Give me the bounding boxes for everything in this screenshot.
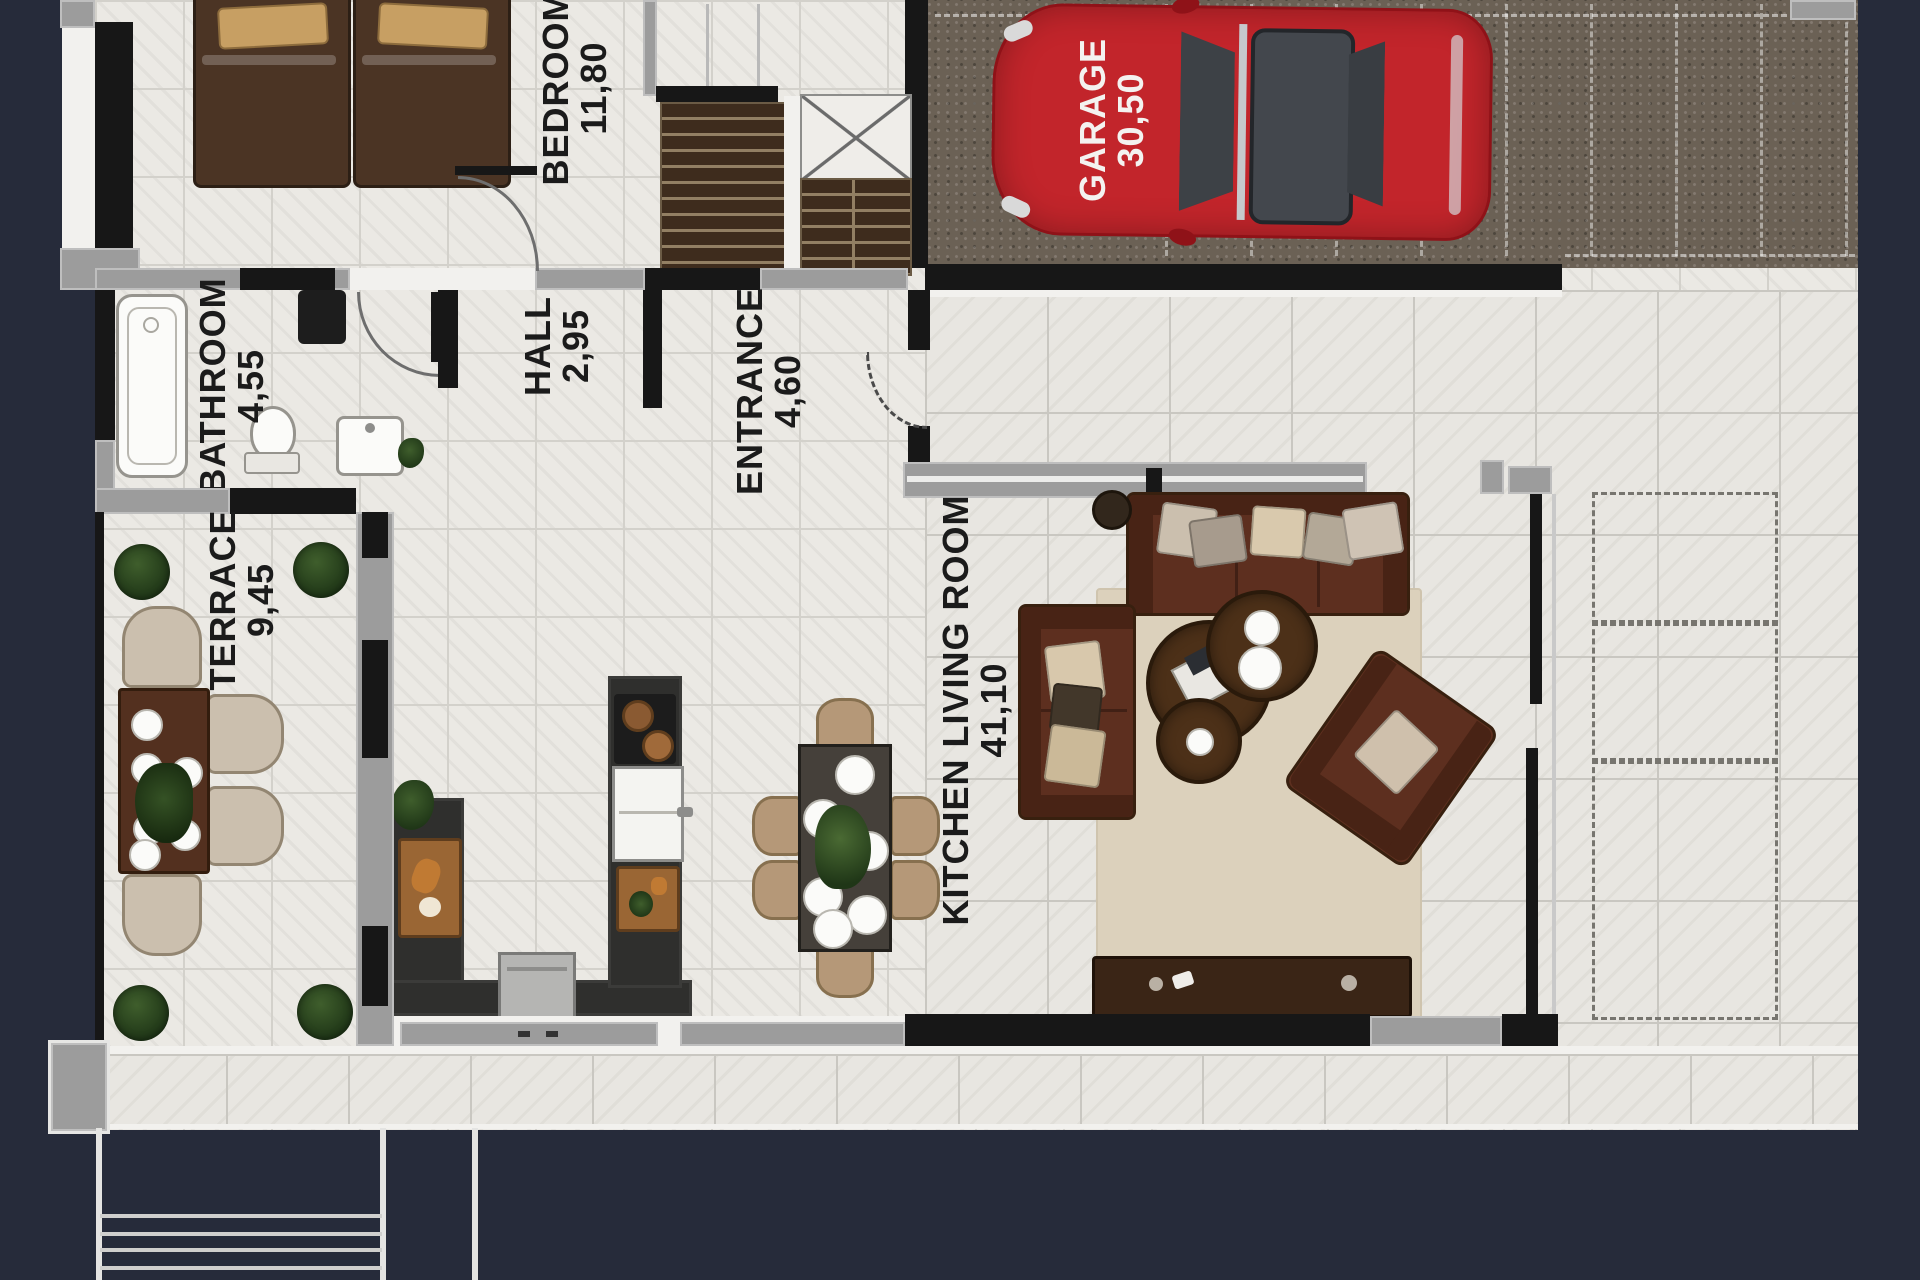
serving-plate bbox=[1244, 610, 1280, 646]
room-area: 4,60 bbox=[769, 287, 807, 495]
exterior-pier bbox=[48, 1040, 110, 1134]
car-trunk-trim bbox=[1449, 35, 1464, 215]
room-area: 41,10 bbox=[975, 495, 1013, 926]
room-label-garage: GARAGE 30,50 bbox=[1074, 38, 1150, 202]
bed-pillow bbox=[377, 2, 489, 50]
terrace-chair bbox=[206, 786, 284, 866]
patio-marking bbox=[1592, 758, 1778, 1020]
sofa-two-seat bbox=[1018, 604, 1136, 820]
bed bbox=[353, 0, 511, 188]
bathroom-cabinet bbox=[298, 290, 346, 344]
room-name: GARAGE bbox=[1074, 38, 1112, 202]
coffee-table-round bbox=[1206, 590, 1318, 702]
food-item bbox=[408, 856, 444, 897]
bed-blanket-fold bbox=[202, 55, 336, 65]
bathroom-left-wall bbox=[95, 290, 115, 440]
right-glass-line bbox=[1552, 494, 1556, 1016]
sofa-pillow bbox=[1188, 513, 1248, 568]
car-roof-glass bbox=[1249, 28, 1356, 225]
exterior-step bbox=[100, 1214, 382, 1236]
terrace-chair bbox=[122, 874, 202, 956]
terrace-bush bbox=[293, 542, 349, 598]
bathtub bbox=[116, 294, 188, 478]
sofa-armrest bbox=[1021, 795, 1133, 817]
bottom-pavement bbox=[104, 1054, 1858, 1126]
room-label-bedroom: BEDROOM 11,80 bbox=[537, 0, 613, 186]
living-right-wall bbox=[1530, 494, 1542, 704]
dining-chair bbox=[890, 796, 940, 856]
exterior-wall bbox=[60, 0, 95, 28]
pot bbox=[622, 700, 654, 732]
sofa-pillow bbox=[1341, 501, 1404, 561]
herbs bbox=[629, 891, 653, 917]
sideboard-knob bbox=[1149, 977, 1163, 991]
garage-grid-line bbox=[1675, 4, 1678, 256]
stairs-landing bbox=[800, 94, 912, 182]
door-opening bbox=[443, 268, 535, 290]
terrace-plate bbox=[129, 839, 161, 871]
sink-faucet bbox=[365, 423, 375, 433]
stair-railing bbox=[757, 4, 760, 86]
entrance-right-wall-low bbox=[908, 426, 930, 466]
cutting-board bbox=[616, 866, 680, 932]
living-bottom-window bbox=[1370, 1016, 1502, 1046]
room-name: ENTRANCE bbox=[731, 287, 769, 495]
site-line bbox=[472, 1128, 478, 1280]
dinner-plate bbox=[813, 909, 853, 949]
window-handle bbox=[546, 1031, 558, 1037]
exterior-step bbox=[100, 1248, 382, 1270]
room-name: BATHROOM bbox=[194, 277, 232, 494]
patio-marking bbox=[1592, 492, 1778, 626]
coffee-table-small bbox=[1156, 698, 1242, 784]
wall-segment bbox=[362, 926, 388, 1006]
pavement-edge bbox=[96, 1124, 1858, 1129]
stairs-top-wall bbox=[656, 86, 778, 102]
garage-grid-line bbox=[1505, 4, 1508, 256]
sideboard-deco bbox=[1171, 970, 1194, 989]
terrace-plate bbox=[131, 709, 163, 741]
sofa-armrest bbox=[1021, 607, 1133, 629]
terrace-bush bbox=[113, 985, 169, 1041]
room-label-entrance: ENTRANCE 4,60 bbox=[731, 287, 807, 495]
garage-grid-line bbox=[1590, 4, 1593, 256]
living-bottom-wall bbox=[905, 1014, 1370, 1048]
stairs-left-flight bbox=[660, 102, 786, 276]
dining-chair bbox=[816, 698, 874, 750]
serving-plate bbox=[1186, 728, 1214, 756]
sofa-pillow bbox=[1043, 723, 1107, 788]
wall-strip bbox=[62, 0, 95, 290]
corner-wall bbox=[1502, 1014, 1558, 1048]
room-area: 30,50 bbox=[1112, 38, 1150, 202]
food-item bbox=[419, 897, 441, 917]
garage-back-fixture bbox=[1790, 0, 1856, 20]
car-windshield bbox=[1179, 19, 1236, 224]
sink-faucet bbox=[677, 807, 693, 817]
car bbox=[990, 3, 1493, 242]
food-item bbox=[651, 877, 667, 895]
stairs-right-flight bbox=[800, 178, 912, 276]
car-rear-window bbox=[1347, 37, 1385, 209]
bathtub-drain bbox=[143, 317, 159, 333]
dinner-plate bbox=[847, 895, 887, 935]
dining-chair bbox=[752, 860, 802, 920]
dining-chair bbox=[752, 796, 802, 856]
patio-marking bbox=[1592, 620, 1778, 764]
living-right-wall-low bbox=[1526, 748, 1538, 1016]
door-opening bbox=[350, 268, 443, 290]
dining-table bbox=[798, 744, 892, 952]
wall-block bbox=[1508, 466, 1552, 494]
room-area: 4,55 bbox=[232, 277, 270, 494]
bed-pillow bbox=[217, 2, 329, 50]
room-name: TERRACE bbox=[204, 509, 242, 690]
pot bbox=[642, 730, 674, 762]
window-mullion bbox=[1146, 468, 1162, 492]
hall-right-wall bbox=[643, 290, 662, 408]
terrace-table bbox=[118, 688, 210, 874]
room-area: 9,45 bbox=[242, 509, 280, 690]
wall-sill bbox=[925, 290, 1562, 297]
table-centerpiece-plant bbox=[815, 805, 871, 889]
sofa-pillow bbox=[1249, 505, 1306, 559]
dining-chair bbox=[890, 860, 940, 920]
terrace-chair bbox=[122, 606, 202, 688]
room-label-kitchen-living: KITCHEN LIVING ROOM 41,10 bbox=[937, 495, 1013, 926]
kitchen-window-band bbox=[680, 1022, 905, 1046]
kitchen-sink bbox=[612, 766, 684, 862]
kitchen-window-band bbox=[400, 1022, 658, 1046]
stove bbox=[614, 694, 676, 764]
window-handle bbox=[518, 1031, 530, 1037]
dinner-plate bbox=[835, 755, 875, 795]
stairs-stringer bbox=[852, 180, 855, 274]
entrance-right-wall bbox=[908, 290, 930, 350]
terrace-bush bbox=[297, 984, 353, 1040]
sofa-armrest bbox=[1129, 495, 1153, 613]
bathroom-sink bbox=[336, 416, 404, 476]
stairs-divider bbox=[784, 96, 800, 272]
corridor-wall bbox=[535, 268, 645, 290]
terrace-bush bbox=[114, 544, 170, 600]
terrace-centerpiece bbox=[135, 763, 193, 843]
room-name: BEDROOM bbox=[537, 0, 575, 186]
hall-left-wall bbox=[438, 290, 458, 388]
terrace-left-wall bbox=[95, 512, 104, 1050]
room-area: 11,80 bbox=[575, 0, 613, 186]
bed bbox=[193, 0, 351, 188]
stair-railing bbox=[706, 4, 709, 86]
garage-grid-line-h bbox=[1565, 254, 1855, 257]
garage-grid-line bbox=[1760, 4, 1763, 256]
sofa-backrest bbox=[1021, 607, 1041, 817]
bedroom-door-leaf bbox=[455, 166, 537, 175]
bed-blanket-fold bbox=[362, 55, 496, 65]
sideboard-knob bbox=[1341, 975, 1357, 991]
sideboard bbox=[1092, 956, 1412, 1018]
cutting-board bbox=[398, 838, 462, 938]
bedroom-left-wall bbox=[95, 22, 133, 248]
room-label-bathroom: BATHROOM 4,55 bbox=[194, 277, 270, 494]
wall-segment bbox=[362, 640, 388, 758]
wall-segment bbox=[362, 512, 388, 558]
partition-wall bbox=[643, 0, 657, 96]
sink-divider bbox=[619, 811, 677, 814]
plinth-line bbox=[95, 1046, 1858, 1054]
terrace-chair bbox=[206, 694, 284, 774]
room-label-terrace: TERRACE 9,45 bbox=[204, 509, 280, 690]
garage-grid-line bbox=[1845, 4, 1848, 256]
wall-block bbox=[1480, 460, 1504, 494]
garage-bottom-wall bbox=[925, 264, 1562, 290]
dishwasher bbox=[498, 952, 576, 1020]
living-window-sill bbox=[907, 476, 1363, 482]
serving-plate bbox=[1238, 646, 1282, 690]
dishwasher-line bbox=[507, 967, 567, 971]
floor-plan-canvas: GARAGE 30,50 BEDROOM 11,80 bbox=[0, 0, 1920, 1280]
room-name: KITCHEN LIVING ROOM bbox=[937, 495, 975, 926]
room-area: 2,95 bbox=[557, 296, 595, 396]
room-label-hall: HALL 2,95 bbox=[519, 296, 595, 396]
dining-chair bbox=[816, 946, 874, 998]
room-name: HALL bbox=[519, 296, 557, 396]
side-table bbox=[1092, 490, 1132, 530]
